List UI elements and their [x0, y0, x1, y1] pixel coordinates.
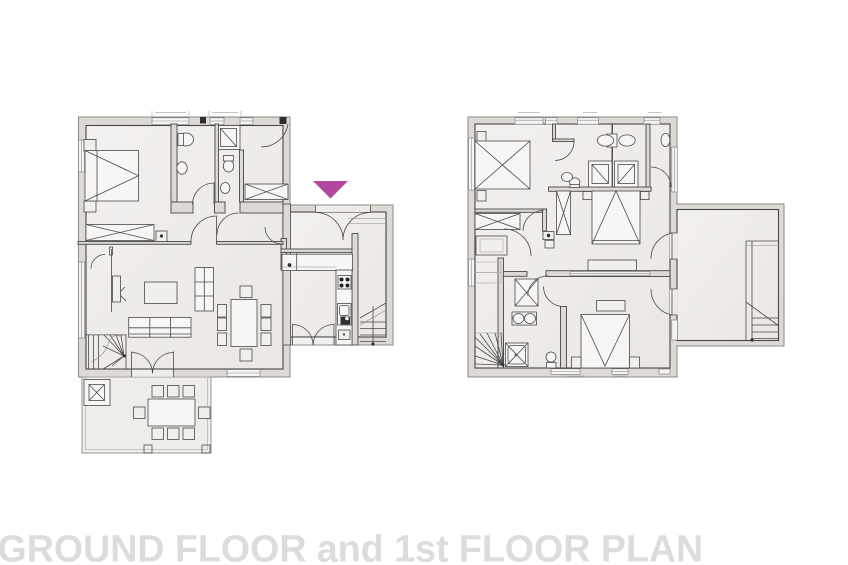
svg-text:GROUND FLOOR and 1st FLOOR PLA: GROUND FLOOR and 1st FLOOR PLAN — [0, 528, 703, 565]
